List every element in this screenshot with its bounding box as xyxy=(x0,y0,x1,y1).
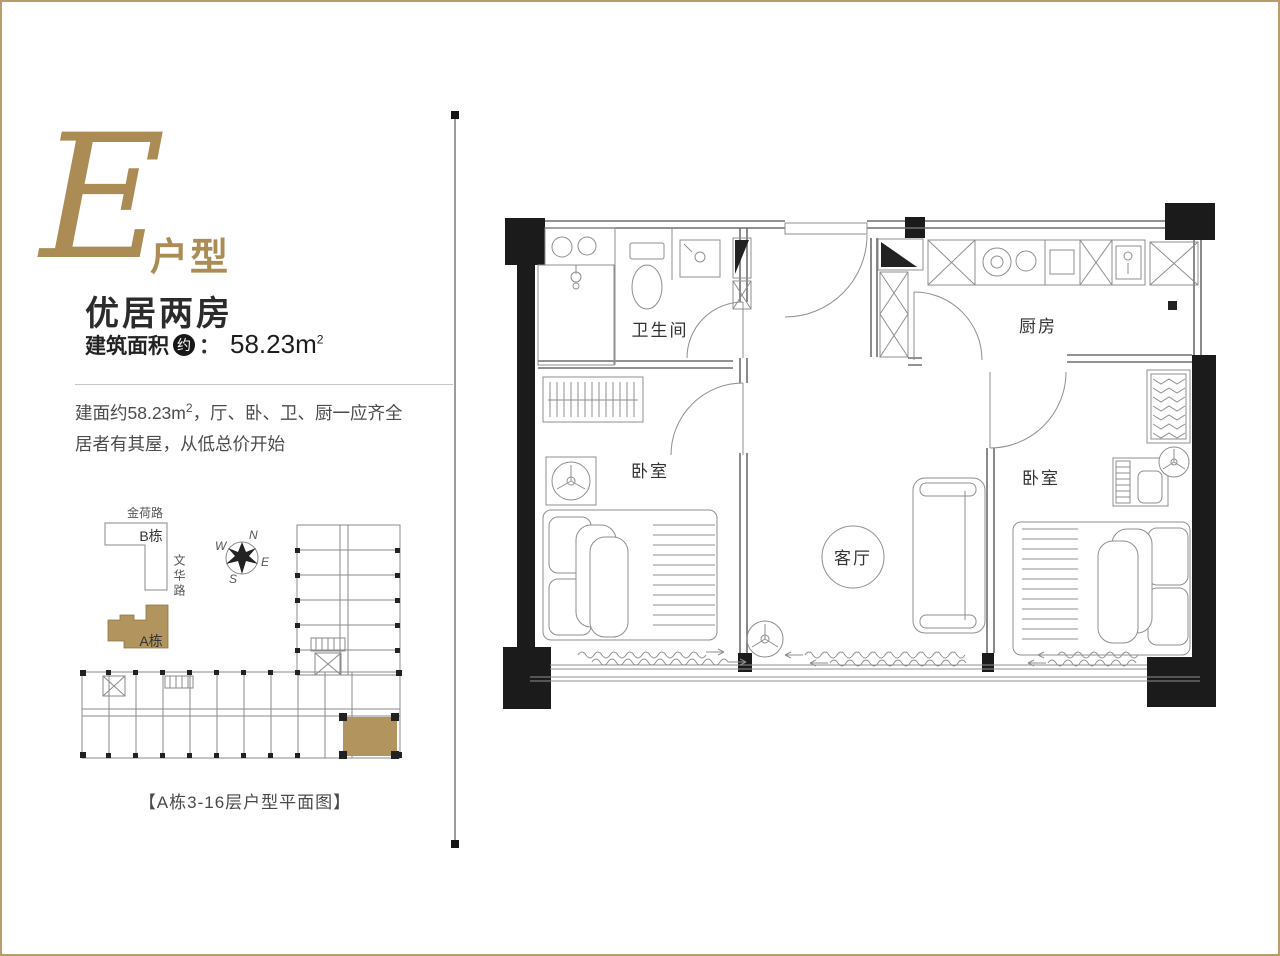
bedroom-left: 卧室 xyxy=(543,377,743,640)
wardrobe xyxy=(543,377,643,422)
unit-type-letter: E xyxy=(40,112,166,284)
toilet-icon xyxy=(630,243,664,309)
unit-type-suffix: 户型 xyxy=(150,226,230,281)
area-value: 58.23m2 xyxy=(230,329,323,360)
divider-bottom-square xyxy=(451,840,459,848)
key-plan-caption: 【A栋3-16层户型平面图】 xyxy=(75,788,415,813)
desc-line-1-text: 建面约58.23m xyxy=(75,403,186,423)
ceiling-fan-icon xyxy=(546,457,596,505)
chair xyxy=(1138,471,1162,503)
stove-icon xyxy=(983,248,1036,276)
pillow xyxy=(1148,528,1188,585)
bed xyxy=(543,510,717,640)
bedroom-right-label: 卧室 xyxy=(1022,469,1060,488)
faucet-icon xyxy=(571,265,581,289)
bedroom-right: 卧室 xyxy=(990,370,1190,655)
area-number: 58.23m xyxy=(230,329,317,359)
highlight-unit xyxy=(343,717,397,756)
ceiling-fan-icon xyxy=(1159,447,1189,477)
duct-shaft xyxy=(733,238,751,309)
balcony-rail xyxy=(530,665,1200,681)
compass-n: N xyxy=(249,528,258,542)
window-squiggle xyxy=(578,649,1138,666)
kitchen-counter xyxy=(928,240,1145,285)
living-room-label: 客厅 xyxy=(834,549,872,568)
area-colon: ： xyxy=(199,330,220,360)
approx-badge: 约 xyxy=(173,334,195,356)
area-sup: 2 xyxy=(317,332,324,346)
compass-w: W xyxy=(215,539,228,553)
unit-title: 优居两房 xyxy=(85,286,233,335)
bed xyxy=(1013,522,1190,655)
bathroom-label: 卫生间 xyxy=(632,321,689,340)
kitchen: 厨房 xyxy=(878,239,1198,360)
road-side-label: 文华路 xyxy=(172,553,186,599)
compass-icon: N E S W xyxy=(215,528,270,586)
tall-cabinet xyxy=(1150,242,1198,285)
area-label: 建筑面积 xyxy=(85,330,169,360)
building-a: A栋 xyxy=(108,605,168,649)
living-room: 客厅 xyxy=(747,478,985,657)
desc-line-1-rest: ，厅、卧、卫、厨一应齐全 xyxy=(193,403,403,423)
floor-plan: 卫生间 xyxy=(500,195,1220,715)
kitchen-sink-icon xyxy=(1116,246,1141,279)
road-top-label: 金荷路 xyxy=(127,505,163,520)
sink-basin-icon xyxy=(552,237,572,257)
bedroom-left-door xyxy=(671,383,743,455)
bathroom-door xyxy=(687,302,743,358)
shower-icon xyxy=(680,240,720,277)
building-b-label: B栋 xyxy=(139,528,162,544)
bedroom-left-label: 卧室 xyxy=(631,462,669,481)
key-plan-wing xyxy=(295,525,400,675)
wardrobe xyxy=(1147,370,1190,443)
floor-strip xyxy=(80,670,402,759)
pantry-cabinet xyxy=(878,239,923,357)
sofa xyxy=(913,478,985,633)
building-a-label: A栋 xyxy=(139,633,162,649)
area-line: 建筑面积 约 ： 58.23m2 xyxy=(85,329,323,360)
pillow xyxy=(1148,588,1188,645)
kitchen-label: 厨房 xyxy=(1019,317,1057,336)
site-plan: 金荷路 文华路 B栋 N E S W A栋 xyxy=(75,498,415,768)
divider-line xyxy=(454,116,456,843)
compass-s: S xyxy=(229,572,237,586)
bedroom-right-door xyxy=(990,372,1066,448)
desc-line-1: 建面约58.23m2，厅、卧、卫、厨一应齐全 xyxy=(75,398,453,429)
sink-counter xyxy=(545,228,615,265)
desc-line-2: 居者有其屋，从低总价开始 xyxy=(75,429,453,460)
ceiling-fan-icon xyxy=(747,621,783,657)
building-b: B栋 xyxy=(105,523,167,590)
bathroom: 卫生间 xyxy=(538,228,751,365)
compass-e: E xyxy=(261,555,270,569)
description: 建面约58.23m2，厅、卧、卫、厨一应齐全 居者有其屋，从低总价开始 xyxy=(75,384,453,459)
sink-basin-icon xyxy=(578,237,596,255)
desc-line-1-sup: 2 xyxy=(186,401,193,415)
kitchen-door xyxy=(914,292,982,360)
entry-door xyxy=(785,223,867,317)
divider-top-square xyxy=(451,111,459,119)
